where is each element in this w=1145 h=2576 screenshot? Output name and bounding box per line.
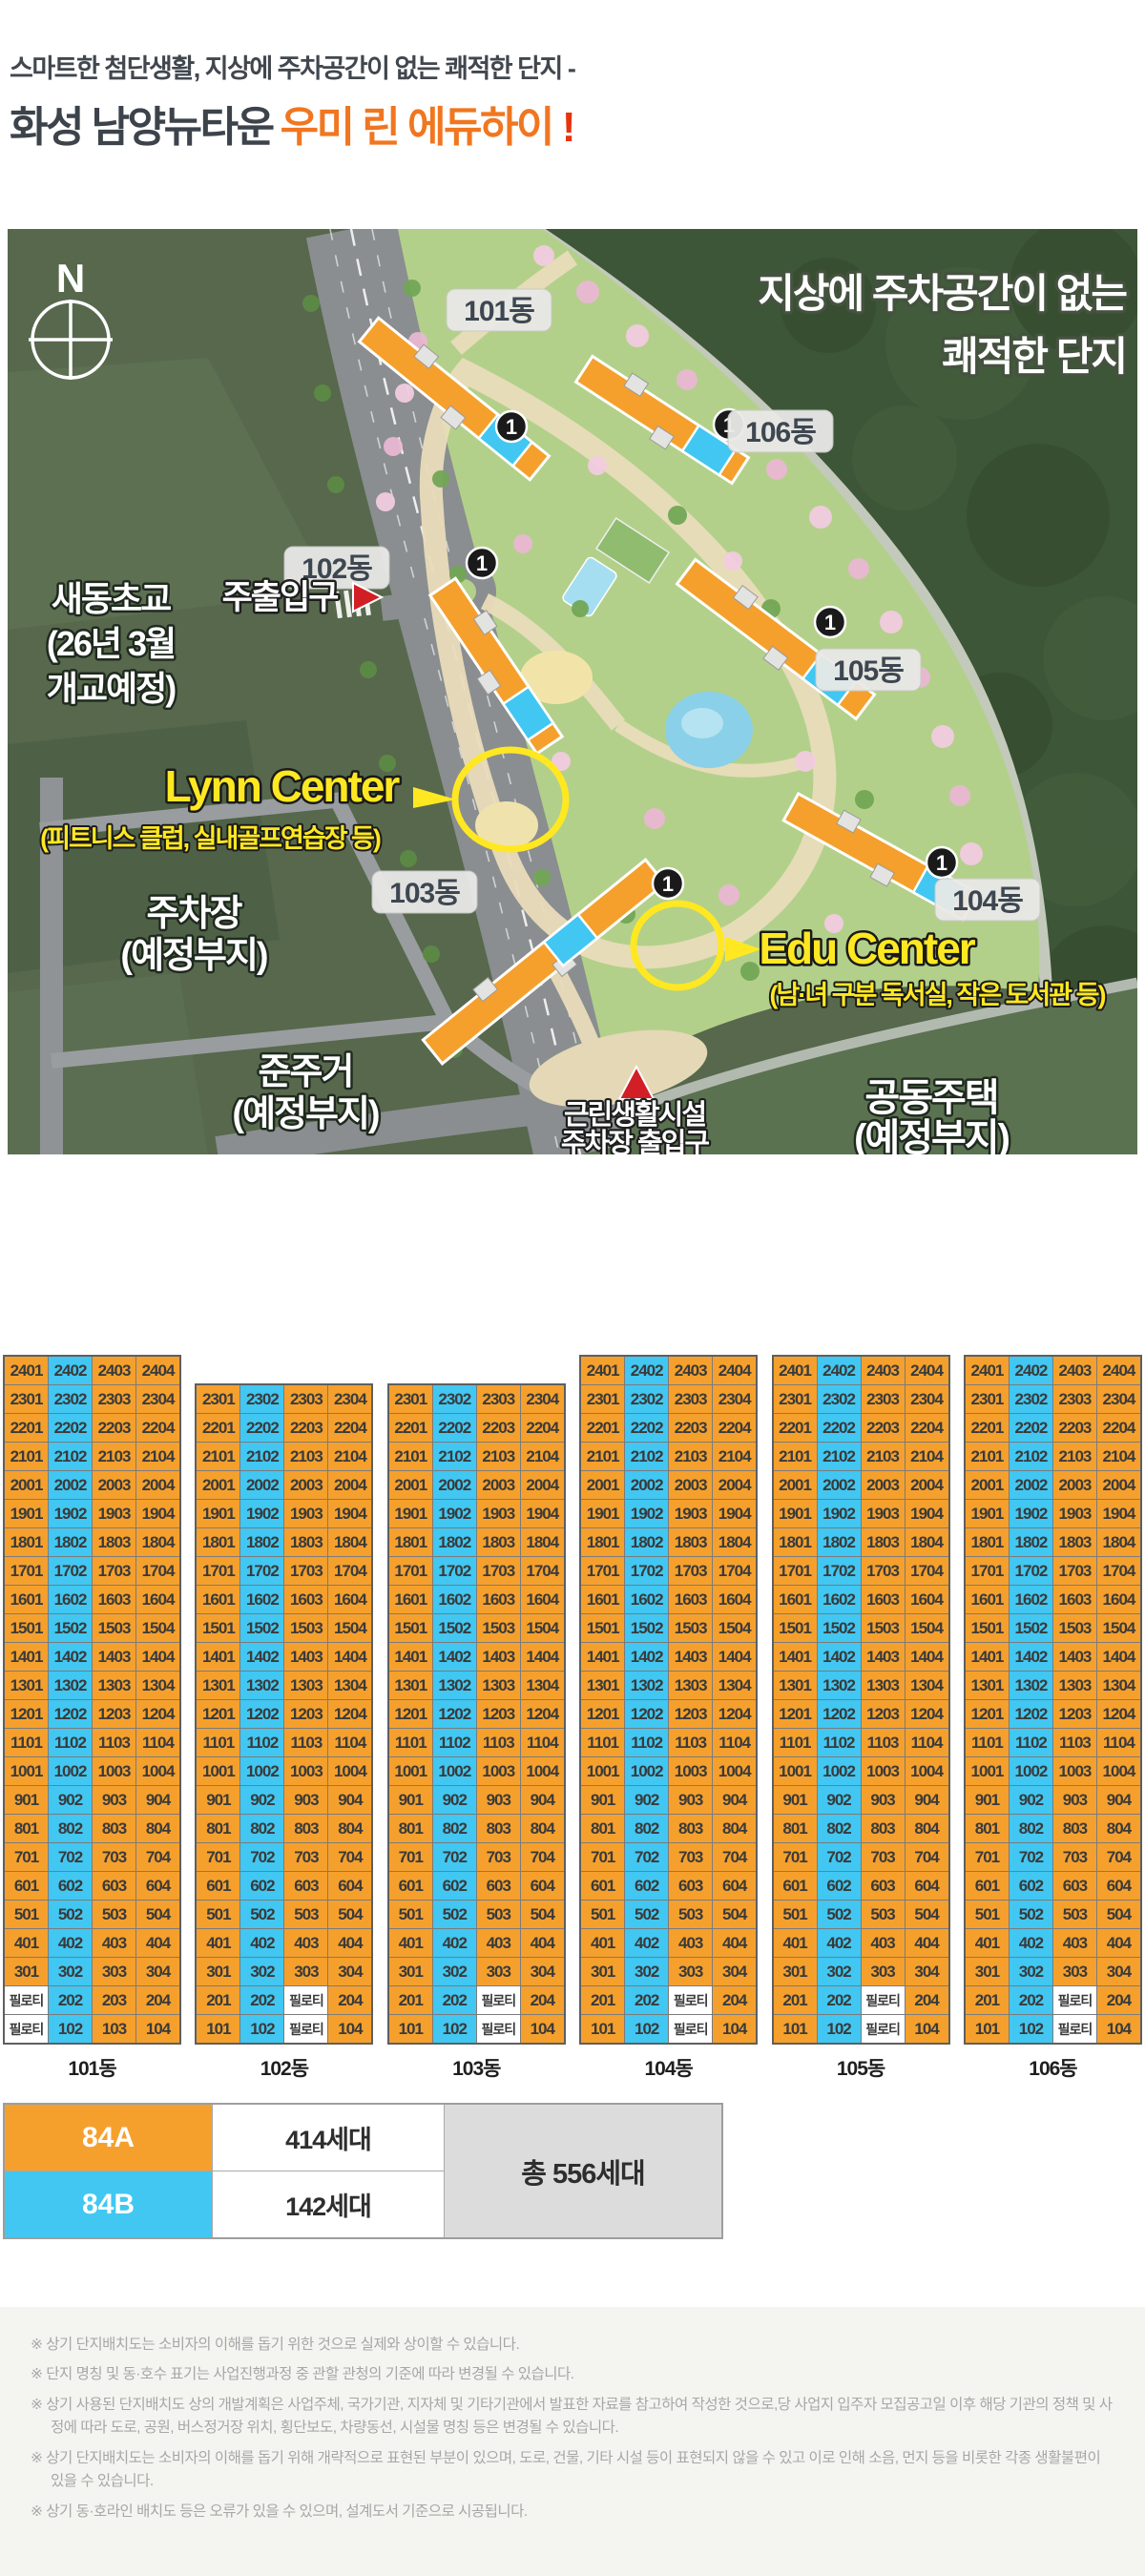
- floor-row: 1301130213031304: [4, 1672, 180, 1700]
- unit-line-1-marker: 1: [496, 411, 527, 442]
- unit-cell: 901: [965, 1786, 1010, 1815]
- disclaimer-item: ※ 상기 단지배치도는 소비자의 이해를 돕기 위해 개략적으로 표현된 부분이…: [31, 2447, 1116, 2494]
- floor-row: 1301130213031304: [388, 1672, 565, 1700]
- unit-cell: 2303: [669, 1385, 713, 1414]
- semi-residential-label-2: (예정부지): [232, 1094, 378, 1134]
- unit-cell: 904: [713, 1786, 758, 1815]
- unit-stack-tables: 2401240224032404230123022303230422012202…: [3, 1355, 1142, 2082]
- unit-cell: 1803: [1052, 1528, 1096, 1557]
- unit-cell: 1702: [625, 1557, 669, 1586]
- unit-cell: 1104: [520, 1729, 565, 1757]
- unit-cell: 804: [905, 1815, 949, 1843]
- unit-cell: 1704: [905, 1557, 949, 1586]
- unit-cell: 2404: [136, 1356, 181, 1385]
- floor-row: 601602603604: [388, 1872, 565, 1901]
- unit-cell: 1704: [520, 1557, 565, 1586]
- floor-row: 801802803804: [580, 1815, 757, 1843]
- unit-cell: 2203: [476, 1414, 520, 1443]
- floor-row: 2001200220032004: [580, 1471, 757, 1500]
- unit-cell: 1402: [817, 1643, 861, 1672]
- floor-row: 1901190219031904: [196, 1500, 372, 1528]
- floor-row: 2001200220032004: [773, 1471, 949, 1500]
- unit-cell: 2004: [713, 1471, 758, 1500]
- unit-cell: 204: [905, 1986, 949, 2015]
- unit-cell: 1203: [669, 1700, 713, 1729]
- unit-cell: 1701: [388, 1557, 433, 1586]
- unit-cell: 1402: [240, 1643, 284, 1672]
- unit-cell: 504: [1096, 1901, 1141, 1929]
- unit-cell: 703: [861, 1843, 905, 1872]
- unit-cell: 403: [93, 1929, 136, 1958]
- unit-cell: 303: [861, 1958, 905, 1986]
- unit-cell: 301: [773, 1958, 818, 1986]
- building-table-label: 105동: [837, 2053, 885, 2082]
- unit-cell: 1904: [136, 1500, 181, 1528]
- unit-cell: 1204: [136, 1700, 181, 1729]
- unit-cell: 1201: [388, 1700, 433, 1729]
- unit-cell: 2402: [625, 1356, 669, 1385]
- floor-row: 2101210221032104: [4, 1443, 180, 1471]
- building-table-label: 103동: [452, 2053, 500, 2082]
- unit-cell: 401: [4, 1929, 49, 1958]
- floor-row: 901902903904: [196, 1786, 372, 1815]
- floor-row: 2201220222032204: [773, 1414, 949, 1443]
- unit-cell: 901: [773, 1786, 818, 1815]
- unit-cell: 1301: [965, 1672, 1010, 1700]
- svg-text:1: 1: [936, 851, 947, 875]
- unit-cell: 204: [713, 1986, 758, 2015]
- unit-cell: 1102: [432, 1729, 476, 1757]
- floor-row: 1801180218031804: [773, 1528, 949, 1557]
- unit-cell: 2304: [905, 1385, 949, 1414]
- unit-cell: 401: [965, 1929, 1010, 1958]
- building-table-label: 104동: [644, 2053, 692, 2082]
- unit-cell: 603: [861, 1872, 905, 1901]
- unit-cell: 704: [905, 1843, 949, 1872]
- unit-cell: 1102: [625, 1729, 669, 1757]
- neighborhood-entrance-label-2: 주차장 출입구: [561, 1128, 709, 1154]
- floor-row: 201202필로티204: [580, 1986, 757, 2015]
- tree-icon: [949, 785, 970, 806]
- unit-cell: 304: [328, 1958, 373, 1986]
- unit-cell: 2301: [580, 1385, 625, 1414]
- unit-cell: 601: [388, 1872, 433, 1901]
- building-column: 2301230223032304220122022203220421012102…: [195, 1383, 373, 2082]
- unit-cell: 802: [817, 1815, 861, 1843]
- unit-cell: 601: [965, 1872, 1010, 1901]
- unit-cell: 2104: [1096, 1443, 1141, 1471]
- unit-cell: 503: [669, 1901, 713, 1929]
- unit-cell: 2202: [432, 1414, 476, 1443]
- unit-cell: 304: [136, 1958, 181, 1986]
- floor-row: 1401140214031404: [388, 1643, 565, 1672]
- legend-row: 84A 414세대 총 556세대: [4, 2104, 722, 2171]
- unit-cell: 104: [136, 2015, 181, 2045]
- unit-cell: 2101: [580, 1443, 625, 1471]
- unit-cell: 1903: [284, 1500, 328, 1528]
- unit-cell: 304: [520, 1958, 565, 1986]
- floor-row: 601602603604: [196, 1872, 372, 1901]
- floor-row: 1801180218031804: [388, 1528, 565, 1557]
- unit-cell: 403: [669, 1929, 713, 1958]
- unit-cell: 903: [93, 1786, 136, 1815]
- unit-cell: 1203: [861, 1700, 905, 1729]
- title-location: 화성 남양뉴타운: [10, 104, 273, 151]
- floor-row: 1001100210031004: [388, 1757, 565, 1786]
- unit-cell: 1902: [817, 1500, 861, 1528]
- unit-cell: 2303: [476, 1384, 520, 1414]
- unit-cell: 1304: [905, 1672, 949, 1700]
- floor-row: 901902903904: [580, 1786, 757, 1815]
- unit-cell: 502: [49, 1901, 93, 1929]
- tree-icon: [404, 280, 421, 297]
- unit-cell: 1501: [773, 1614, 818, 1643]
- unit-cell: 1504: [136, 1614, 181, 1643]
- unit-cell: 404: [1096, 1929, 1141, 1958]
- tree-icon: [668, 506, 687, 525]
- apartment-site-label-2: (예정부지): [854, 1117, 1010, 1154]
- tree-icon: [302, 295, 320, 312]
- unit-cell: 2201: [965, 1414, 1010, 1443]
- unit-cell: 2102: [817, 1443, 861, 1471]
- floor-row: 501502503504: [965, 1901, 1141, 1929]
- unit-cell: 2302: [49, 1385, 93, 1414]
- building-table-label: 106동: [1029, 2053, 1076, 2082]
- unit-cell: 2304: [520, 1384, 565, 1414]
- unit-cell: 2301: [965, 1385, 1010, 1414]
- unit-cell: 2203: [93, 1414, 136, 1443]
- floor-row: 1101110211031104: [580, 1729, 757, 1757]
- floor-row: 301302303304: [965, 1958, 1141, 1986]
- unit-cell: 902: [625, 1786, 669, 1815]
- unit-cell: 1701: [580, 1557, 625, 1586]
- unit-cell: 2003: [1052, 1471, 1096, 1500]
- floor-row: 1101110211031104: [965, 1729, 1141, 1757]
- floor-row: 701702703704: [580, 1843, 757, 1872]
- unit-cell: 1702: [240, 1557, 284, 1586]
- unit-cell: 2104: [136, 1443, 181, 1471]
- unit-cell: 1002: [240, 1757, 284, 1786]
- unit-cell: 202: [49, 1986, 93, 2015]
- tree-icon: [931, 725, 954, 748]
- unit-cell: 2403: [1052, 1356, 1096, 1385]
- unit-cell: 201: [965, 1986, 1010, 2015]
- unit-cell: 604: [713, 1872, 758, 1901]
- floor-row: 601602603604: [965, 1872, 1141, 1901]
- unit-cell: 1704: [136, 1557, 181, 1586]
- floor-row: 801802803804: [4, 1815, 180, 1843]
- unit-cell: 2303: [861, 1385, 905, 1414]
- unit-cell: 801: [580, 1815, 625, 1843]
- unit-cell: 2103: [93, 1443, 136, 1471]
- unit-cell: 201: [196, 1986, 240, 2015]
- unit-cell: 104: [713, 2015, 758, 2045]
- unit-cell: 203: [93, 1986, 136, 2015]
- floor-row: 101102필로티104: [388, 2015, 565, 2045]
- floor-row: 1501150215031504: [196, 1614, 372, 1643]
- floor-row: 1601160216031604: [965, 1586, 1141, 1614]
- disclaimer-section: ※ 상기 단지배치도는 소비자의 이해를 돕기 위한 것으로 실제와 상이할 수…: [0, 2307, 1145, 2576]
- page-subtitle: 스마트한 첨단생활, 지상에 주차공간이 없는 쾌적한 단지 -: [10, 48, 574, 85]
- floor-row: 2001200220032004: [388, 1471, 565, 1500]
- unit-cell: 1403: [476, 1643, 520, 1672]
- floor-row: 101102필로티104: [580, 2015, 757, 2045]
- unit-table-102동: 2301230223032304220122022203220421012102…: [195, 1383, 373, 2045]
- unit-cell: 602: [817, 1872, 861, 1901]
- unit-cell: 2002: [49, 1471, 93, 1500]
- tree-icon: [588, 456, 607, 475]
- svg-text:105동: 105동: [833, 655, 904, 687]
- unit-cell: 1604: [905, 1586, 949, 1614]
- floor-row: 1401140214031404: [196, 1643, 372, 1672]
- building-table-label: 102동: [260, 2053, 308, 2082]
- floor-row: 2401240224032404: [580, 1356, 757, 1385]
- unit-cell: 402: [1009, 1929, 1052, 1958]
- floor-row: 2401240224032404: [965, 1356, 1141, 1385]
- unit-cell: 1401: [196, 1643, 240, 1672]
- floor-row: 1101110211031104: [388, 1729, 565, 1757]
- unit-cell: 201: [388, 1986, 433, 2015]
- unit-cell: 802: [49, 1815, 93, 1843]
- tree-icon: [395, 384, 414, 403]
- unit-cell: 801: [4, 1815, 49, 1843]
- tree-icon: [880, 611, 903, 634]
- unit-cell: 703: [284, 1843, 328, 1872]
- unit-cell: 1403: [284, 1643, 328, 1672]
- piloti-cell: 필로티: [284, 1986, 328, 2015]
- unit-cell: 1603: [1052, 1586, 1096, 1614]
- unit-cell: 1303: [284, 1672, 328, 1700]
- floor-row: 1101110211031104: [196, 1729, 372, 1757]
- unit-cell: 1602: [625, 1586, 669, 1614]
- building-column: 2401240224032404230123022303230422012202…: [3, 1355, 181, 2082]
- unit-cell: 1901: [965, 1500, 1010, 1528]
- unit-cell: 1302: [49, 1672, 93, 1700]
- unit-cell: 1801: [965, 1528, 1010, 1557]
- unit-cell: 2101: [388, 1443, 433, 1471]
- floor-row: 2101210221032104: [196, 1443, 372, 1471]
- unit-cell: 501: [196, 1901, 240, 1929]
- unit-cell: 503: [476, 1901, 520, 1929]
- unit-cell: 1001: [580, 1757, 625, 1786]
- unit-cell: 403: [861, 1929, 905, 1958]
- unit-cell: 1802: [49, 1528, 93, 1557]
- unit-cell: 1102: [1009, 1729, 1052, 1757]
- unit-cell: 1704: [1096, 1557, 1141, 1586]
- unit-cell: 1104: [328, 1729, 373, 1757]
- unit-cell: 304: [905, 1958, 949, 1986]
- floor-row: 1801180218031804: [580, 1528, 757, 1557]
- floor-row: 1501150215031504: [580, 1614, 757, 1643]
- piloti-cell: 필로티: [476, 1986, 520, 2015]
- unit-cell: 102: [49, 2015, 93, 2045]
- piloti-cell: 필로티: [1052, 1986, 1096, 2015]
- unit-cell: 204: [136, 1986, 181, 2015]
- floor-row: 2001200220032004: [4, 1471, 180, 1500]
- unit-cell: 2401: [965, 1356, 1010, 1385]
- unit-cell: 1601: [4, 1586, 49, 1614]
- unit-cell: 2401: [4, 1356, 49, 1385]
- unit-cell: 2003: [476, 1471, 520, 1500]
- unit-cell: 501: [388, 1901, 433, 1929]
- unit-cell: 1501: [388, 1614, 433, 1643]
- unit-cell: 502: [240, 1901, 284, 1929]
- unit-cell: 1504: [905, 1614, 949, 1643]
- unit-cell: 704: [713, 1843, 758, 1872]
- unit-cell: 2101: [773, 1443, 818, 1471]
- unit-cell: 802: [625, 1815, 669, 1843]
- unit-cell: 2002: [1009, 1471, 1052, 1500]
- floor-row: 1401140214031404: [4, 1643, 180, 1672]
- unit-cell: 1003: [476, 1757, 520, 1786]
- unit-cell: 1804: [905, 1528, 949, 1557]
- unit-cell: 601: [580, 1872, 625, 1901]
- unit-cell: 1902: [432, 1500, 476, 1528]
- unit-cell: 1601: [196, 1586, 240, 1614]
- unit-cell: 304: [713, 1958, 758, 1986]
- unit-cell: 804: [328, 1815, 373, 1843]
- unit-cell: 401: [580, 1929, 625, 1958]
- unit-cell: 2204: [328, 1414, 373, 1443]
- unit-cell: 2002: [432, 1471, 476, 1500]
- unit-cell: 1101: [196, 1729, 240, 1757]
- unit-cell: 302: [432, 1958, 476, 1986]
- unit-cell: 1601: [773, 1586, 818, 1614]
- floor-row: 2101210221032104: [388, 1443, 565, 1471]
- floor-row: 401402403404: [388, 1929, 565, 1958]
- unit-cell: 2001: [965, 1471, 1010, 1500]
- unit-cell: 503: [1052, 1901, 1096, 1929]
- unit-cell: 703: [669, 1843, 713, 1872]
- unit-cell: 1001: [196, 1757, 240, 1786]
- unit-cell: 104: [1096, 2015, 1141, 2045]
- unit-cell: 101: [773, 2015, 818, 2045]
- unit-cell: 1602: [1009, 1586, 1052, 1614]
- unit-cell: 1103: [861, 1729, 905, 1757]
- building-badge: 101동: [447, 289, 552, 331]
- unit-cell: 1703: [93, 1557, 136, 1586]
- unit-cell: 502: [432, 1901, 476, 1929]
- floor-row: 2001200220032004: [965, 1471, 1141, 1500]
- unit-cell: 601: [773, 1872, 818, 1901]
- unit-cell: 603: [669, 1872, 713, 1901]
- unit-cell: 2201: [388, 1414, 433, 1443]
- unit-cell: 2401: [773, 1356, 818, 1385]
- unit-cell: 1402: [432, 1643, 476, 1672]
- unit-cell: 1702: [432, 1557, 476, 1586]
- unit-cell: 1001: [773, 1757, 818, 1786]
- unit-cell: 1102: [240, 1729, 284, 1757]
- floor-row: 1901190219031904: [773, 1500, 949, 1528]
- tree-icon: [795, 751, 816, 772]
- neighborhood-entrance-label-1: 근린생활시설: [564, 1099, 705, 1131]
- unit-cell: 1604: [136, 1586, 181, 1614]
- unit-cell: 1204: [1096, 1700, 1141, 1729]
- building-column: 2301230223032304220122022203220421012102…: [387, 1383, 566, 2082]
- school-label-2: (26년 3월: [47, 624, 175, 663]
- tree-icon: [644, 808, 665, 829]
- floor-row: 1701170217031704: [773, 1557, 949, 1586]
- floor-row: 901902903904: [965, 1786, 1141, 1815]
- unit-cell: 202: [432, 1986, 476, 2015]
- floor-row: 801802803804: [196, 1815, 372, 1843]
- unit-cell: 903: [669, 1786, 713, 1815]
- floor-row: 2301230223032304: [196, 1384, 372, 1414]
- unit-cell: 601: [4, 1872, 49, 1901]
- unit-cell: 903: [1052, 1786, 1096, 1815]
- floor-row: 2301230223032304: [965, 1385, 1141, 1414]
- unit-cell: 2204: [905, 1414, 949, 1443]
- unit-cell: 202: [240, 1986, 284, 2015]
- piloti-cell: 필로티: [669, 2015, 713, 2045]
- unit-cell: 804: [1096, 1815, 1141, 1843]
- tree-icon: [718, 884, 739, 905]
- unit-cell: 1903: [1052, 1500, 1096, 1528]
- floor-row: 401402403404: [580, 1929, 757, 1958]
- piloti-cell: 필로티: [669, 1986, 713, 2015]
- unit-cell: 1303: [93, 1672, 136, 1700]
- unit-cell: 2301: [196, 1384, 240, 1414]
- unit-cell: 2001: [196, 1471, 240, 1500]
- building-column: 2401240224032404230123022303230422012202…: [772, 1355, 950, 2082]
- unit-cell: 102: [432, 2015, 476, 2045]
- unit-cell: 2001: [4, 1471, 49, 1500]
- unit-cell: 704: [520, 1843, 565, 1872]
- unit-cell: 2001: [388, 1471, 433, 1500]
- unit-cell: 503: [93, 1901, 136, 1929]
- unit-cell: 101: [580, 2015, 625, 2045]
- unit-cell: 1004: [520, 1757, 565, 1786]
- unit-cell: 1101: [965, 1729, 1010, 1757]
- unit-cell: 1603: [669, 1586, 713, 1614]
- floor-row: 201202필로티204: [773, 1986, 949, 2015]
- unit-cell: 704: [136, 1843, 181, 1872]
- school-label-1: 새동초교: [52, 579, 171, 618]
- unit-cell: 2202: [1009, 1414, 1052, 1443]
- floor-row: 301302303304: [773, 1958, 949, 1986]
- unit-cell: 1502: [817, 1614, 861, 1643]
- floor-row: 1601160216031604: [196, 1586, 372, 1614]
- unit-cell: 1901: [196, 1500, 240, 1528]
- floor-row: 2001200220032004: [196, 1471, 372, 1500]
- unit-cell: 1901: [580, 1500, 625, 1528]
- unit-cell: 1304: [1096, 1672, 1141, 1700]
- unit-cell: 802: [240, 1815, 284, 1843]
- unit-cell: 601: [196, 1872, 240, 1901]
- unit-cell: 1101: [4, 1729, 49, 1757]
- unit-cell: 301: [388, 1958, 433, 1986]
- floor-row: 601602603604: [773, 1872, 949, 1901]
- floor-row: 1401140214031404: [773, 1643, 949, 1672]
- building-badge: 104동: [935, 879, 1040, 921]
- unit-cell: 1303: [669, 1672, 713, 1700]
- unit-cell: 903: [476, 1786, 520, 1815]
- unit-cell: 1104: [713, 1729, 758, 1757]
- unit-cell: 2203: [861, 1414, 905, 1443]
- unit-cell: 2404: [1096, 1356, 1141, 1385]
- unit-cell: 901: [196, 1786, 240, 1815]
- unit-cell: 1503: [284, 1614, 328, 1643]
- unit-cell: 1004: [905, 1757, 949, 1786]
- unit-cell: 1802: [625, 1528, 669, 1557]
- unit-cell: 502: [625, 1901, 669, 1929]
- unit-cell: 404: [905, 1929, 949, 1958]
- floor-row: 1501150215031504: [4, 1614, 180, 1643]
- unit-cell: 901: [4, 1786, 49, 1815]
- parking-site-label-1: 주차장: [147, 894, 243, 934]
- unit-cell: 803: [861, 1815, 905, 1843]
- pond-highlight: [681, 708, 723, 738]
